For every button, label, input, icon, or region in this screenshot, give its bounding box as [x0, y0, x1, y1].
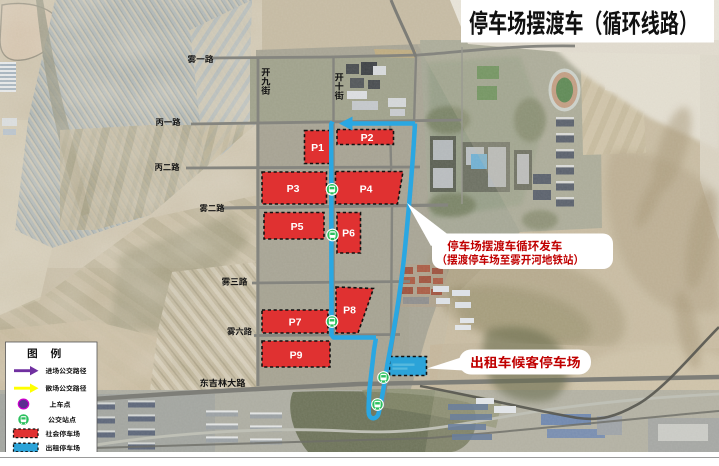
svg-text:P6: P6 — [342, 228, 355, 240]
svg-text:P2: P2 — [361, 132, 374, 144]
svg-text:P3: P3 — [287, 183, 300, 195]
svg-text:P7: P7 — [289, 317, 302, 329]
svg-text:P5: P5 — [291, 221, 304, 233]
svg-text:P9: P9 — [290, 350, 303, 362]
svg-text:P1: P1 — [311, 142, 324, 154]
svg-text:P4: P4 — [360, 184, 373, 196]
svg-text:P8: P8 — [343, 305, 356, 317]
